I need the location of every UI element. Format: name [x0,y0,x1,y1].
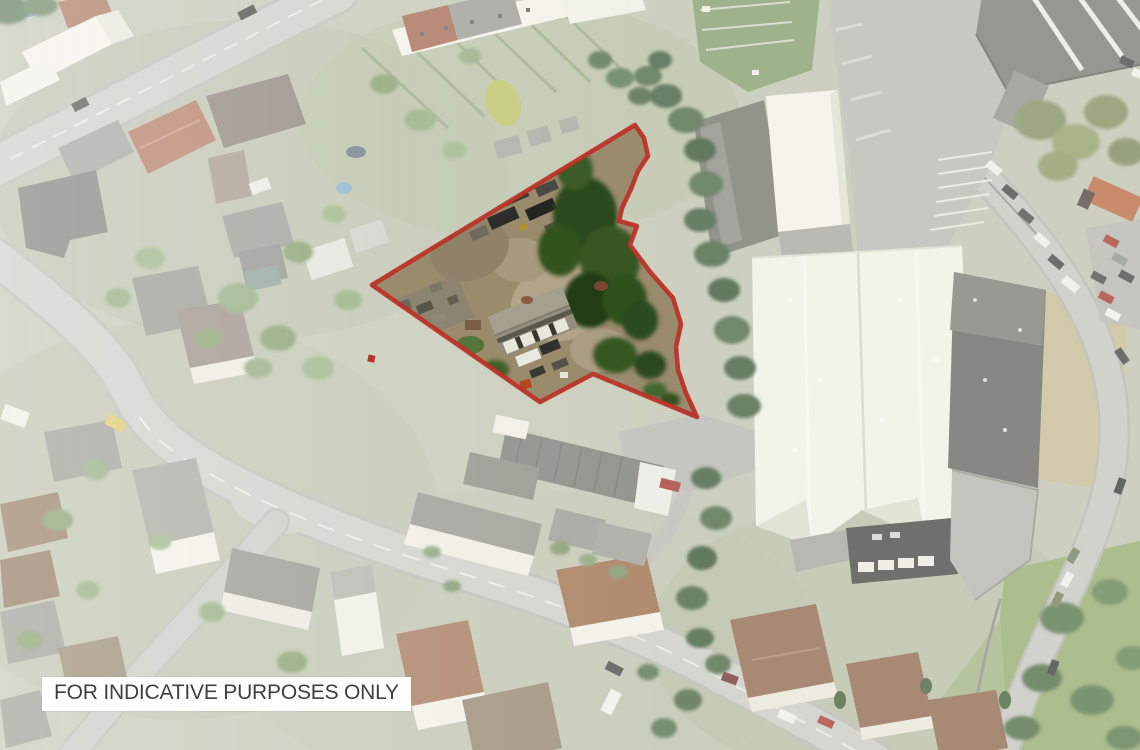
boundary-marker-dot [367,354,375,362]
aerial-site-plan: FOR INDICATIVE PURPOSES ONLY [0,0,1140,750]
aerial-photo [0,0,1140,750]
indicative-purposes-label: FOR INDICATIVE PURPOSES ONLY [42,677,411,711]
indicative-purposes-text: FOR INDICATIVE PURPOSES ONLY [54,681,399,704]
